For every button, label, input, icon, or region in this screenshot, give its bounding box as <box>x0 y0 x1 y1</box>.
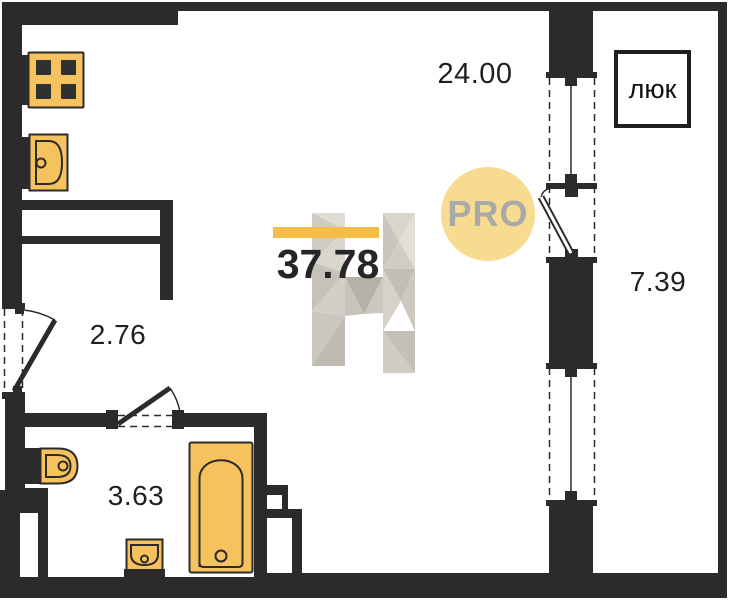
wall-left-mid <box>5 399 25 490</box>
total-area-label: 37.78 <box>262 241 394 288</box>
window-sill <box>546 257 597 263</box>
bathtub-icon <box>190 443 253 573</box>
stove-icon <box>22 53 84 108</box>
room-area-label-bathroom: 3.63 <box>86 480 186 512</box>
wall-right <box>718 2 727 598</box>
balcony-door-icon <box>541 189 571 254</box>
bathroom-wall-right <box>254 413 267 575</box>
room-area-label-balcony: 7.39 <box>608 266 708 298</box>
kitchen-sink-icon <box>22 135 68 191</box>
washbasin-icon <box>124 540 165 578</box>
balcony-wall <box>546 11 597 575</box>
wall-top <box>178 2 727 11</box>
kitchen-counter-top <box>22 200 173 210</box>
wall-top-kitchen <box>2 2 178 25</box>
shaft-wall <box>282 495 288 509</box>
hatch-label: люк <box>629 74 677 105</box>
bathroom-wall-top-right <box>184 413 265 427</box>
wall-left-upper <box>2 2 22 308</box>
bathroom-wall-top-left <box>25 413 107 427</box>
bathroom-door-icon <box>106 388 184 429</box>
interior-walls <box>20 200 302 579</box>
window-sill <box>546 500 597 506</box>
window-sill <box>546 183 597 189</box>
kitchen-counter-bottom <box>22 236 160 244</box>
room-area-label-kitchen-living: 24.00 <box>425 58 525 91</box>
pro-badge-label: PRO <box>447 193 528 235</box>
toilet-icon <box>23 448 78 484</box>
shaft-wall <box>267 485 288 495</box>
hatch-box: люк <box>614 50 691 128</box>
kitchen-partition <box>160 200 173 300</box>
shaft-wall <box>267 509 302 518</box>
entry-door-icon <box>2 303 55 399</box>
wall-left-lower <box>0 490 20 598</box>
room-area-label-hallway: 2.76 <box>68 319 168 351</box>
total-area-accent-bar <box>273 227 379 238</box>
wall-bottom-left <box>0 577 254 598</box>
shaft-wall <box>292 518 302 575</box>
pro-badge: PRO <box>441 167 535 261</box>
floor-plan: 24.00 2.76 3.63 7.39 37.78 люк PRO <box>0 0 731 600</box>
wall-bottom <box>254 573 727 598</box>
